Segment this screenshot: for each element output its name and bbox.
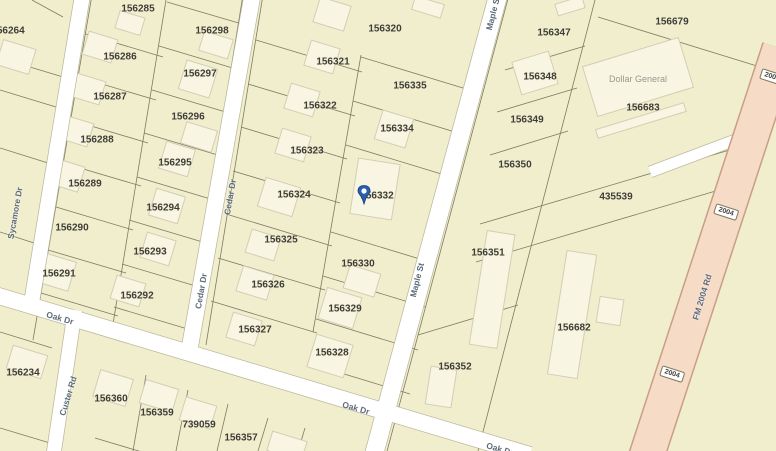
street-label-sycamore-dr: Sycamore Dr	[6, 186, 25, 239]
parcel-label-156323: 156323	[290, 146, 323, 157]
parcel-label-156682: 156682	[557, 323, 590, 334]
parcel-label-156292: 156292	[120, 291, 153, 302]
parcel-label-156234: 156234	[6, 368, 39, 379]
street-label-maple-st: Maple St	[408, 262, 426, 298]
parcel-label-156349: 156349	[510, 115, 543, 126]
parcel-label-156329: 156329	[328, 304, 361, 315]
street-label-cedar-dr: Cedar Dr	[193, 272, 209, 309]
parcel-label-156322: 156322	[303, 101, 336, 112]
parcel-label-156327: 156327	[238, 325, 271, 336]
parcel-label-156683: 156683	[626, 103, 659, 114]
route-shield-2004: 2004	[713, 203, 739, 221]
parcel-label-156352: 156352	[438, 362, 471, 373]
parcel-label-156297: 156297	[183, 69, 216, 80]
parcel-label-156679: 156679	[655, 17, 688, 28]
parcel-label-156286: 156286	[103, 52, 136, 63]
route-shield-2004: 2004	[759, 68, 776, 86]
parcel-label-156325: 156325	[264, 235, 297, 246]
parcel-label-156320: 156320	[368, 24, 401, 35]
street-label-fm-2004-rd: FM 2004 Rd	[690, 273, 713, 321]
parcel-label-435539: 435539	[599, 192, 632, 203]
parcel-label-739059: 739059	[182, 420, 215, 431]
street-label-oak-dr: Oak Dr	[45, 309, 75, 326]
parcel-label-156335: 156335	[393, 81, 426, 92]
parcel-label-156295: 156295	[158, 158, 191, 169]
parcel-label-156291: 156291	[42, 269, 75, 280]
street-label-custer-rd: Custer Rd	[57, 375, 78, 417]
parcel-map[interactable]: 1562641562851562981562861562971562871562…	[0, 0, 776, 451]
parcel-label-156324: 156324	[277, 190, 310, 201]
location-pin-icon[interactable]	[357, 185, 371, 205]
parcel-label-156328: 156328	[315, 348, 348, 359]
parcel-label-156285: 156285	[121, 4, 154, 15]
parcel-label-156287: 156287	[93, 92, 126, 103]
street-label-cedar-dr: Cedar Dr	[222, 178, 238, 215]
parcel-label-156330: 156330	[341, 259, 374, 270]
parcel-label-156289: 156289	[68, 179, 101, 190]
parcel-label-156326: 156326	[251, 280, 284, 291]
street-label-maple-st: Maple St	[484, 0, 502, 31]
street-label-oak-dr: Oak Dr	[341, 399, 371, 416]
parcel-label-156293: 156293	[133, 247, 166, 258]
street-label-oak-dr: Oak Dr	[485, 440, 515, 451]
parcel-label-156350: 156350	[498, 160, 531, 171]
parcel-label-156334: 156334	[380, 124, 413, 135]
parcel-label-156288: 156288	[80, 135, 113, 146]
parcel-label-156360: 156360	[94, 394, 127, 405]
poi-label-dollar-general: Dollar General	[609, 74, 667, 84]
parcel-label-156296: 156296	[171, 112, 204, 123]
route-shield-2004: 2004	[659, 365, 685, 383]
map-labels-layer: 1562641562851562981562861562971562871562…	[0, 0, 776, 451]
parcel-label-156294: 156294	[146, 203, 179, 214]
pin-glyph	[357, 185, 371, 205]
parcel-label-156359: 156359	[140, 408, 173, 419]
parcel-label-156298: 156298	[195, 26, 228, 37]
parcel-label-156351: 156351	[471, 248, 504, 259]
parcel-label-156348: 156348	[523, 72, 556, 83]
parcel-label-156290: 156290	[55, 223, 88, 234]
parcel-label-156347: 156347	[537, 28, 570, 39]
parcel-label-156321: 156321	[316, 57, 349, 68]
parcel-label-156264: 156264	[0, 26, 25, 37]
parcel-label-156357: 156357	[224, 433, 257, 444]
